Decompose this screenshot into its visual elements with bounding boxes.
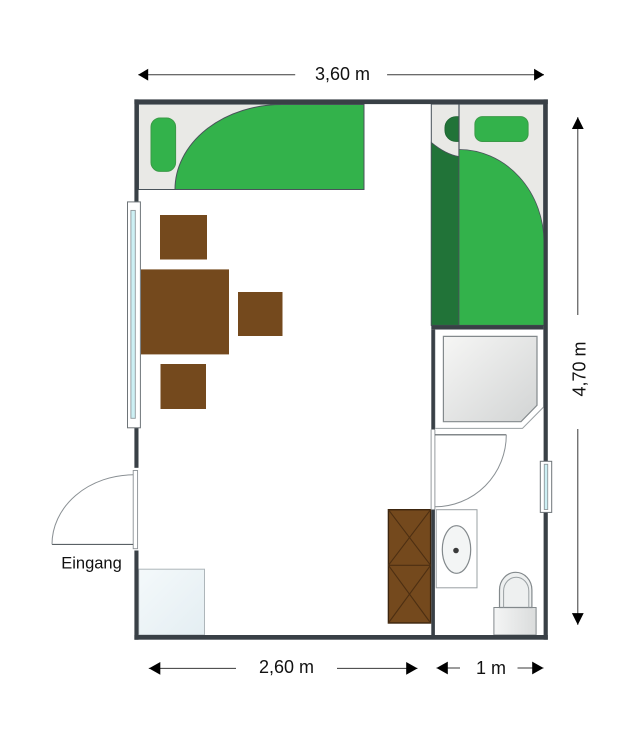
svg-text:2,60 m: 2,60 m [259,657,314,677]
svg-text:3,60 m: 3,60 m [315,64,370,84]
svg-text:Eingang: Eingang [61,554,122,572]
svg-text:4,70 m: 4,70 m [570,341,590,396]
svg-text:1 m: 1 m [476,658,506,678]
